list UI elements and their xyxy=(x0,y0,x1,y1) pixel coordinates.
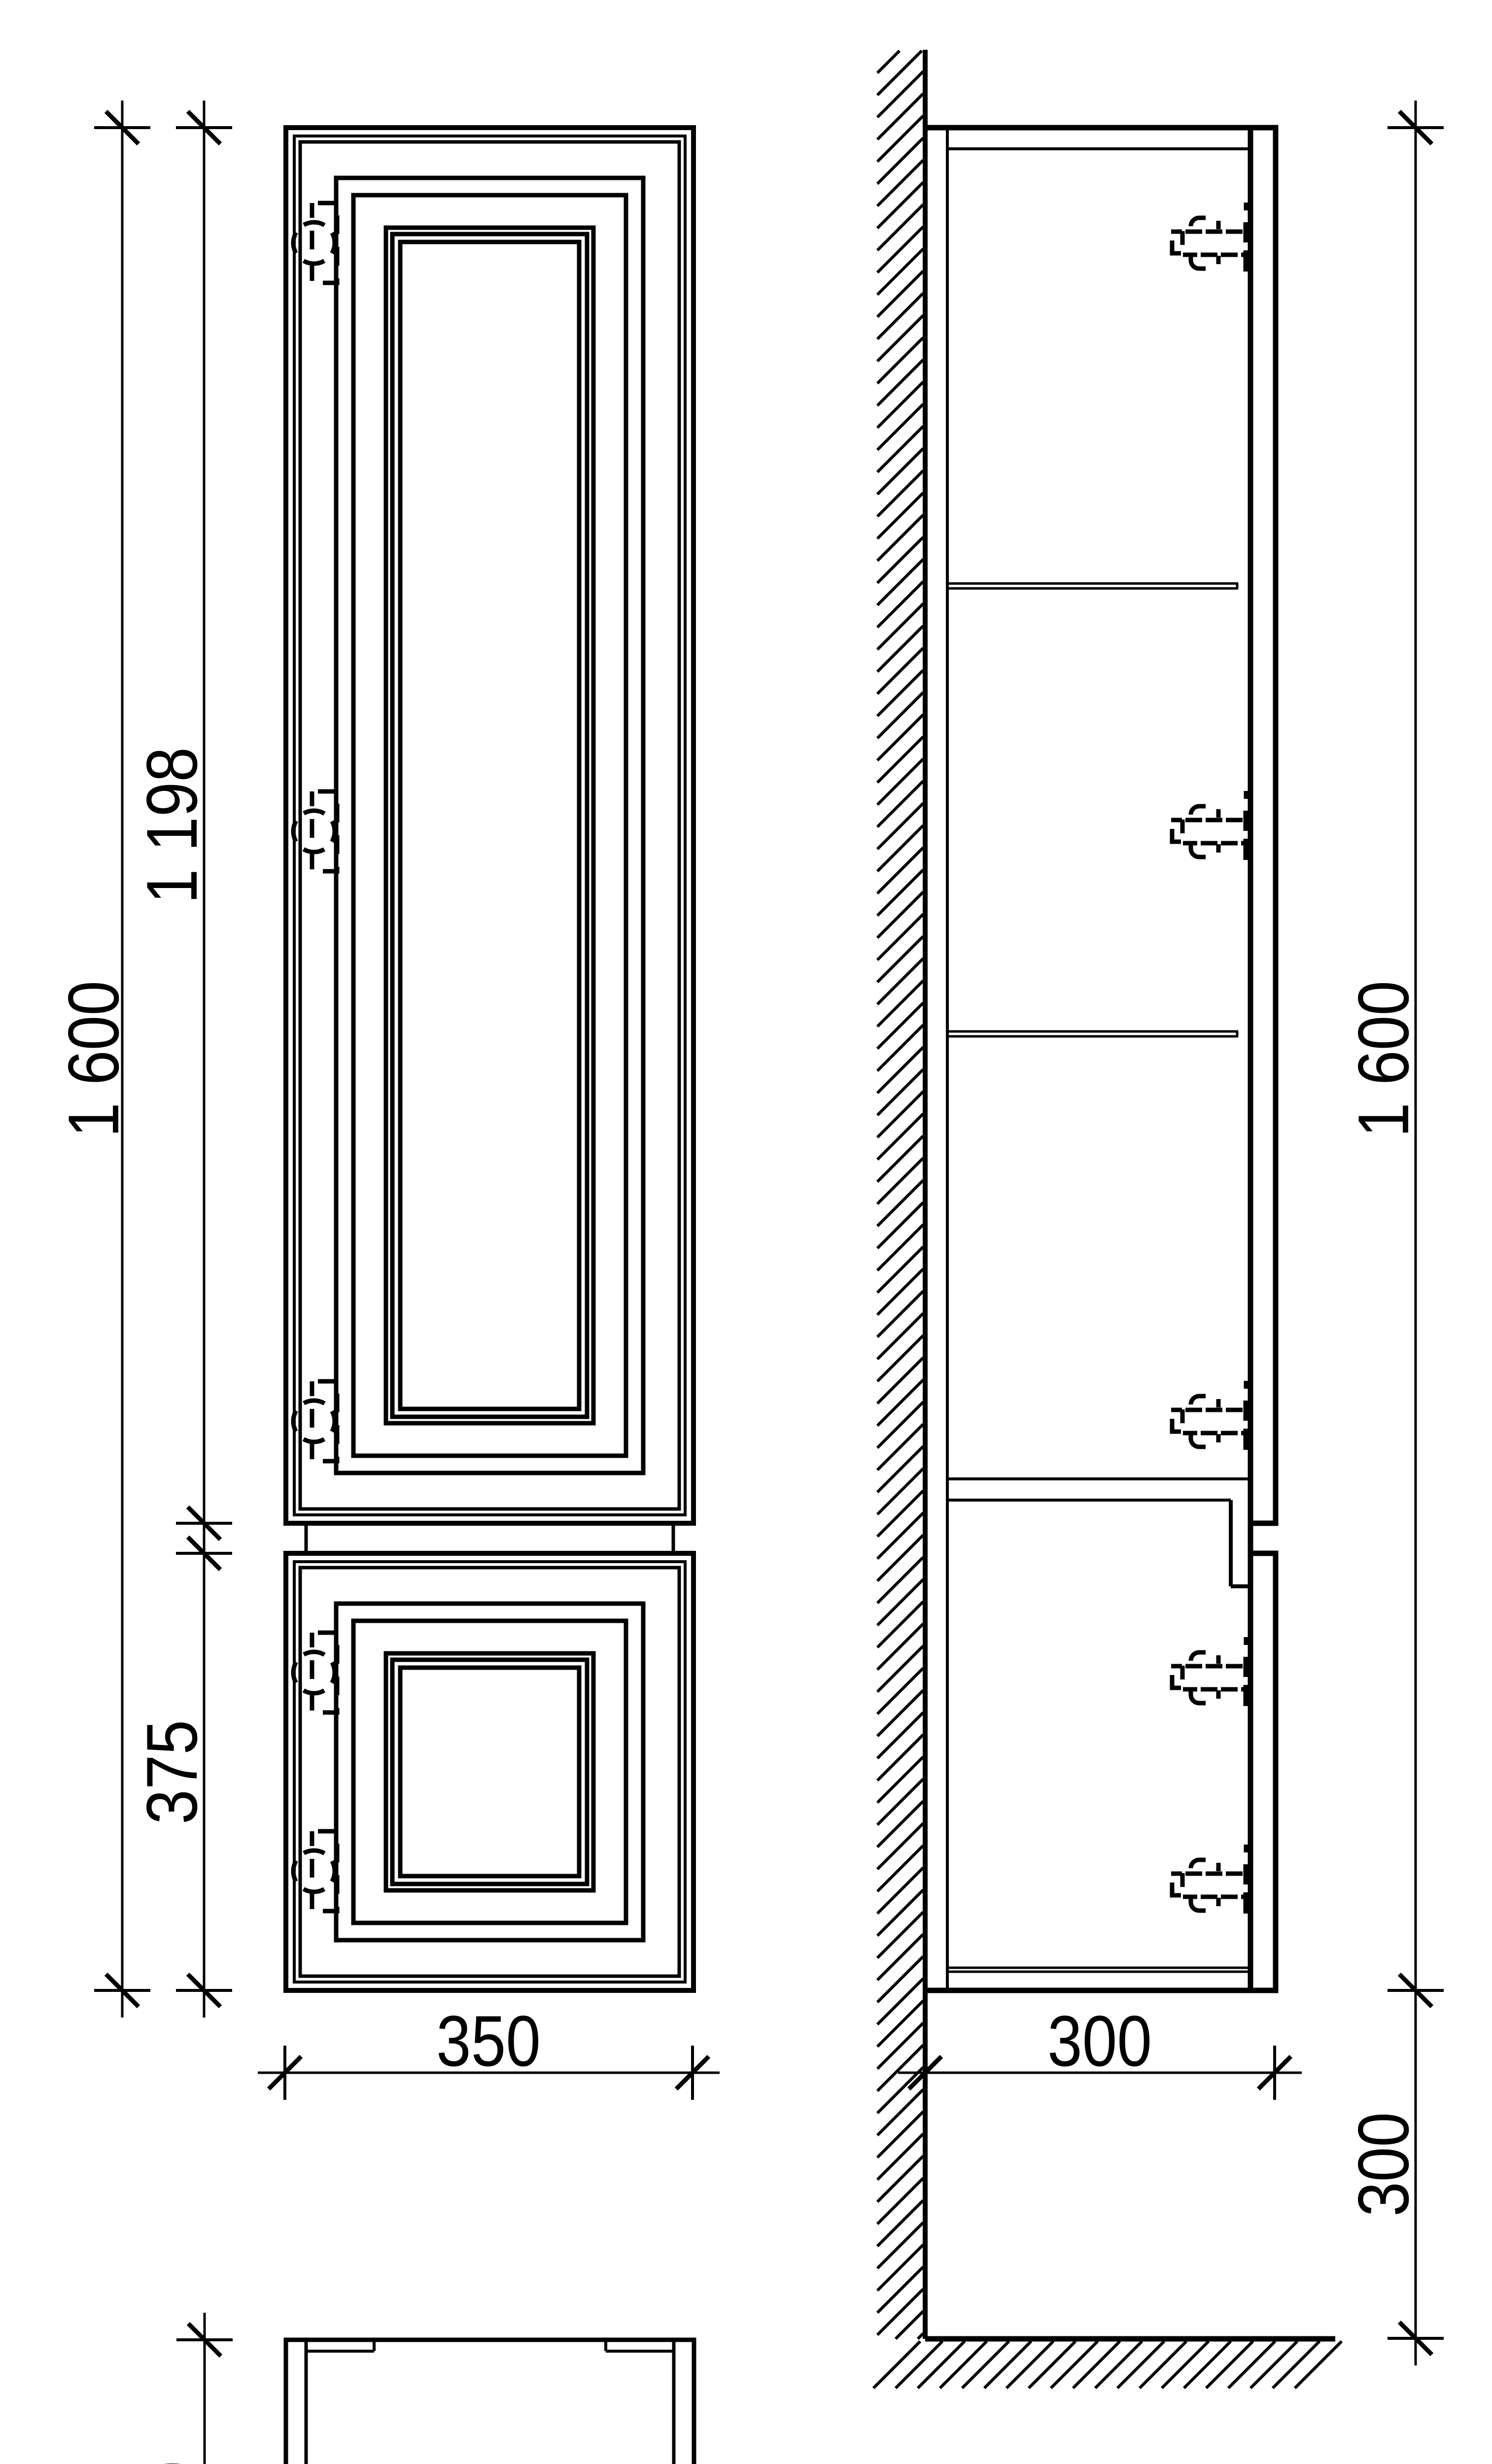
svg-text:1 600: 1 600 xyxy=(53,981,134,1137)
svg-text:300: 300 xyxy=(1343,2112,1423,2217)
svg-text:1 198: 1 198 xyxy=(132,747,212,904)
svg-text:350: 350 xyxy=(436,2001,541,2081)
svg-text:1 600: 1 600 xyxy=(1343,981,1423,1137)
svg-text:300: 300 xyxy=(1047,2001,1152,2081)
svg-text:300: 300 xyxy=(132,2461,212,2464)
svg-text:375: 375 xyxy=(132,1720,212,1824)
